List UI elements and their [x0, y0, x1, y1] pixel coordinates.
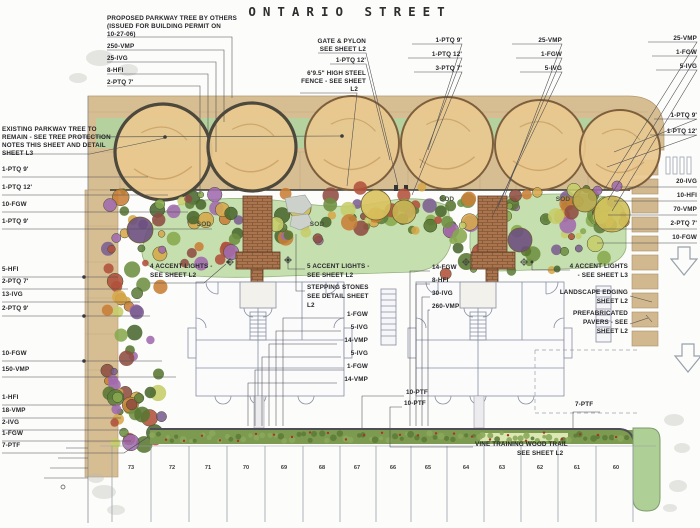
callout-label: 1-FGW	[347, 311, 368, 319]
callout-label: NOTES THIS SHEET AND DETAIL	[2, 142, 106, 150]
callout-label: 7-PTF	[2, 442, 20, 450]
callout-label: SEE SHEET L2	[307, 272, 353, 280]
callout-label: 260-VMP	[432, 303, 459, 311]
callout-label: 14-FGW	[432, 264, 457, 272]
parking-stall-number: 67	[354, 465, 360, 471]
callout-label: 30-IVG	[432, 290, 453, 298]
callout-label: 10-HFI	[677, 192, 697, 200]
callout-label: 20-IVG	[676, 178, 697, 186]
callout-label: PROPOSED PARKWAY TREE BY OTHERS	[107, 15, 237, 23]
callout-label: 10-27-06)	[107, 31, 136, 39]
callout-label: EXISTING PARKWAY TREE TO	[2, 126, 97, 134]
callout-label: 4 ACCENT LIGHTS -	[150, 263, 213, 271]
parking-stall-number: 70	[243, 465, 249, 471]
callout-label: 150-VMP	[2, 366, 29, 374]
down-arrow-icon	[671, 247, 697, 275]
callout-label: 1-FGW	[541, 51, 562, 59]
callout-label: PREFABRICATED	[573, 310, 628, 318]
callout-label: 2-PTQ 9'	[2, 305, 29, 313]
callout-label: REMAIN - SEE TREE PROTECTION	[2, 134, 111, 142]
callout-label: 18-VMP	[2, 407, 26, 415]
callout-label: SEE DETAIL SHEET	[307, 293, 369, 301]
callout-label: 10-FGW	[2, 350, 27, 358]
callout-label: 1-FGW	[347, 363, 368, 371]
callout-label: LANDSCAPE EDGING	[560, 289, 628, 297]
parking-stalls	[100, 446, 656, 522]
sod-label: SOD	[440, 196, 455, 204]
callout-label: 10-PTF	[406, 389, 428, 397]
callout-label: 1-PTQ 12'	[432, 51, 462, 59]
crosswalk-stripes	[666, 157, 691, 174]
callout-label: PAVERS - SEE	[583, 319, 628, 327]
parking-stall-number: 61	[574, 465, 580, 471]
callout-label: 1-FGW	[676, 49, 697, 57]
parking-stall-number: 69	[281, 465, 287, 471]
callout-label: 14-VMP	[344, 337, 368, 345]
callout-label: 250-VMP	[107, 43, 134, 51]
callout-label: 1-PTQ 12'	[2, 184, 32, 192]
prefab-paver-strip	[632, 160, 658, 346]
sod-label: SOD	[197, 221, 212, 229]
brick-pier-right	[471, 252, 515, 269]
callout-label: 1-PTQ 9'	[436, 37, 463, 45]
brick-pier-left	[236, 252, 280, 269]
sod-label: SOD	[310, 221, 325, 229]
callout-label: 2-IVG	[2, 419, 19, 427]
vine-hedge	[149, 428, 660, 511]
callout-label: SHEET L3	[2, 150, 33, 158]
parking-stall-number: 68	[319, 465, 325, 471]
sod-label: SOD	[556, 196, 571, 204]
callout-label: 10-FGW	[2, 201, 27, 209]
parking-stall-number: 63	[499, 465, 505, 471]
callout-label: SHEET L2	[597, 328, 628, 336]
parking-stall-number: 66	[390, 465, 396, 471]
callout-label: 2-PTQ 7'	[2, 278, 29, 286]
callout-label: 6'9.5" HIGH STEEL	[307, 70, 366, 78]
callout-label: L2	[350, 86, 358, 94]
callout-label: 5-IVG	[351, 324, 368, 332]
brick-walk-right	[478, 196, 507, 252]
callout-label: L2	[307, 302, 315, 310]
parking-stall-number: 64	[463, 465, 469, 471]
parking-stall-number: 73	[128, 465, 134, 471]
callout-label: SEE SHEET L2	[517, 450, 563, 458]
parking-stall-number: 62	[537, 465, 543, 471]
callout-label: 5-IVG	[680, 63, 697, 71]
callout-label: 8-HFI	[107, 67, 124, 75]
callout-label: 10-FGW	[672, 234, 697, 242]
parking-stall-number: 65	[425, 465, 431, 471]
callout-label: SEE SHEET L2	[320, 46, 366, 54]
callout-label: FENCE - SEE SHEET	[301, 78, 366, 86]
callout-label: 5 ACCENT LIGHTS -	[307, 263, 370, 271]
parking-stall-number: 60	[613, 465, 619, 471]
flow-arrows	[671, 247, 700, 372]
parking-stall-number: 72	[169, 465, 175, 471]
callout-label: 1-PTQ 12'	[336, 57, 366, 65]
street-title: ONTARIO STREET	[0, 4, 700, 19]
callout-label: 25-IVG	[107, 55, 128, 63]
parking-stall-number: 71	[205, 465, 211, 471]
callout-label: 7-PTF	[575, 401, 593, 409]
callout-label: (ISSUED FOR BUILDING PERMIT ON	[107, 23, 221, 31]
callout-label: 1-FGW	[2, 430, 23, 438]
building-right	[408, 282, 572, 404]
callout-label: 5-IVG	[545, 65, 562, 73]
callout-label: 25-VMP	[673, 35, 697, 43]
callout-label: 1-PTQ 12'	[667, 128, 697, 136]
callout-label: 2-PTQ 7'	[671, 220, 698, 228]
callout-label: SHEET L2	[597, 298, 628, 306]
callout-label: VINE TRAINING WOOD TRAIL	[475, 441, 568, 449]
callout-label: 25-VMP	[538, 37, 562, 45]
brick-walk-left	[243, 196, 272, 252]
callout-label: GATE & PYLON	[317, 38, 366, 46]
callout-label: - SEE SHEET L3	[578, 272, 628, 280]
callout-label: 3-PTQ 7'	[436, 65, 463, 73]
corner-lawn-strip	[633, 428, 660, 511]
callout-label: 4 ACCENT LIGHTS	[570, 263, 628, 271]
callout-label: 8-HFI	[432, 277, 449, 285]
callout-label: 5-IVG	[351, 350, 368, 358]
callout-label: STEPPING STONES	[307, 284, 369, 292]
callout-label: 2-PTQ 7'	[107, 79, 134, 87]
landscape-site-plan: ONTARIO STREET PROPOSED PARKWAY TREE BY …	[0, 0, 700, 528]
callout-label: 1-HFI	[2, 394, 19, 402]
callout-label: 1-PTQ 9'	[2, 166, 29, 174]
callout-label: 1-PTQ 9'	[671, 112, 698, 120]
down-arrow-icon	[675, 344, 700, 372]
callout-label: 5-HFI	[2, 266, 19, 274]
buildings	[188, 282, 611, 428]
callout-label: 70-VMP	[673, 206, 697, 214]
callout-label: 13-IVG	[2, 291, 23, 299]
callout-label: SEE SHEET L2	[150, 272, 196, 280]
callout-label: 1-PTQ 9'	[2, 218, 29, 226]
callout-label: 10-PTF	[404, 400, 426, 408]
callout-label: 14-VMP	[344, 376, 368, 384]
